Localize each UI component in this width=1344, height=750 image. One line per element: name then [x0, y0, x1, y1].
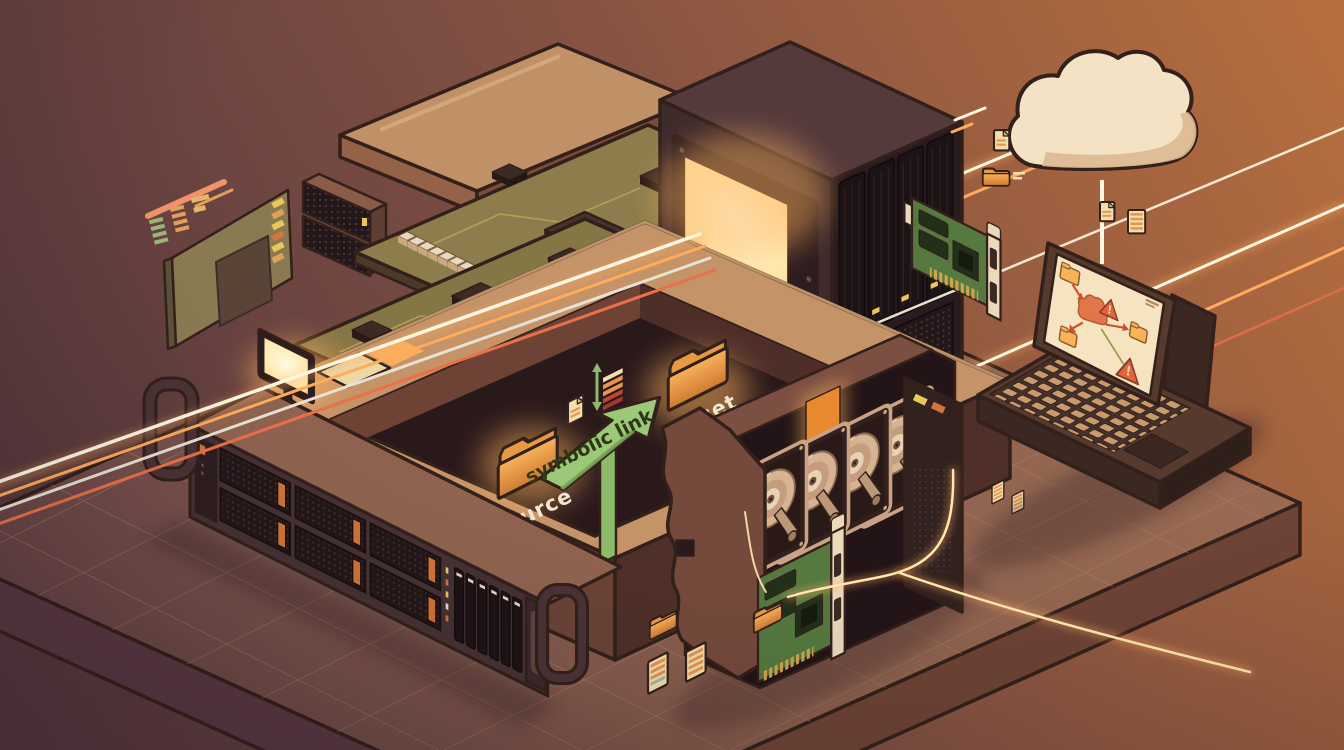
torn-wall-notch: [676, 540, 694, 556]
file-icon: [1100, 202, 1114, 221]
illustration-canvas: symbolic link source target: [0, 0, 1344, 750]
isometric-illustration-symbolic-link: symbolic link source target: [0, 0, 1344, 750]
nic-bracket: [987, 222, 1000, 321]
list-icon: [1128, 210, 1145, 233]
file-icon: [994, 130, 1009, 150]
